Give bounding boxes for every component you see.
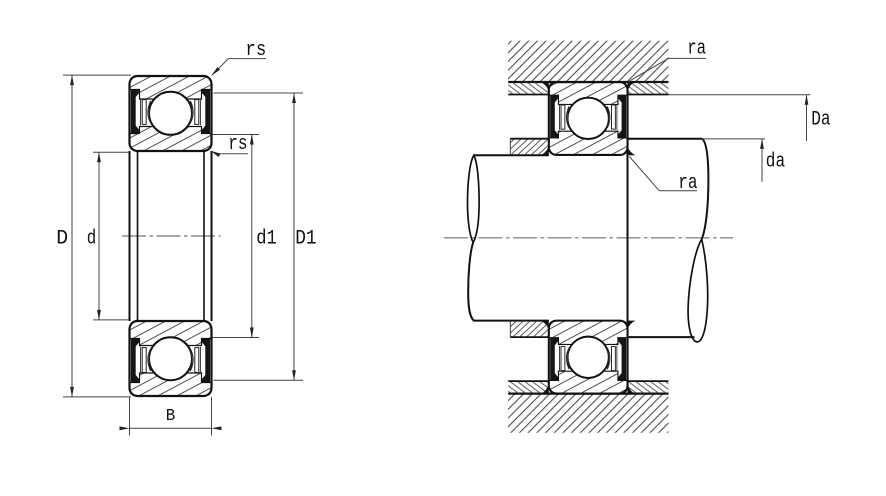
svg-text:da: da bbox=[766, 151, 785, 174]
svg-text:rs: rs bbox=[228, 133, 247, 156]
svg-text:D1: D1 bbox=[295, 228, 316, 251]
svg-text:d: d bbox=[87, 228, 97, 251]
svg-text:ra: ra bbox=[687, 38, 706, 61]
svg-text:B: B bbox=[166, 407, 176, 426]
svg-text:D: D bbox=[56, 228, 68, 251]
svg-text:ra: ra bbox=[678, 172, 697, 195]
svg-text:d1: d1 bbox=[256, 228, 277, 251]
svg-text:Da: Da bbox=[811, 108, 830, 131]
